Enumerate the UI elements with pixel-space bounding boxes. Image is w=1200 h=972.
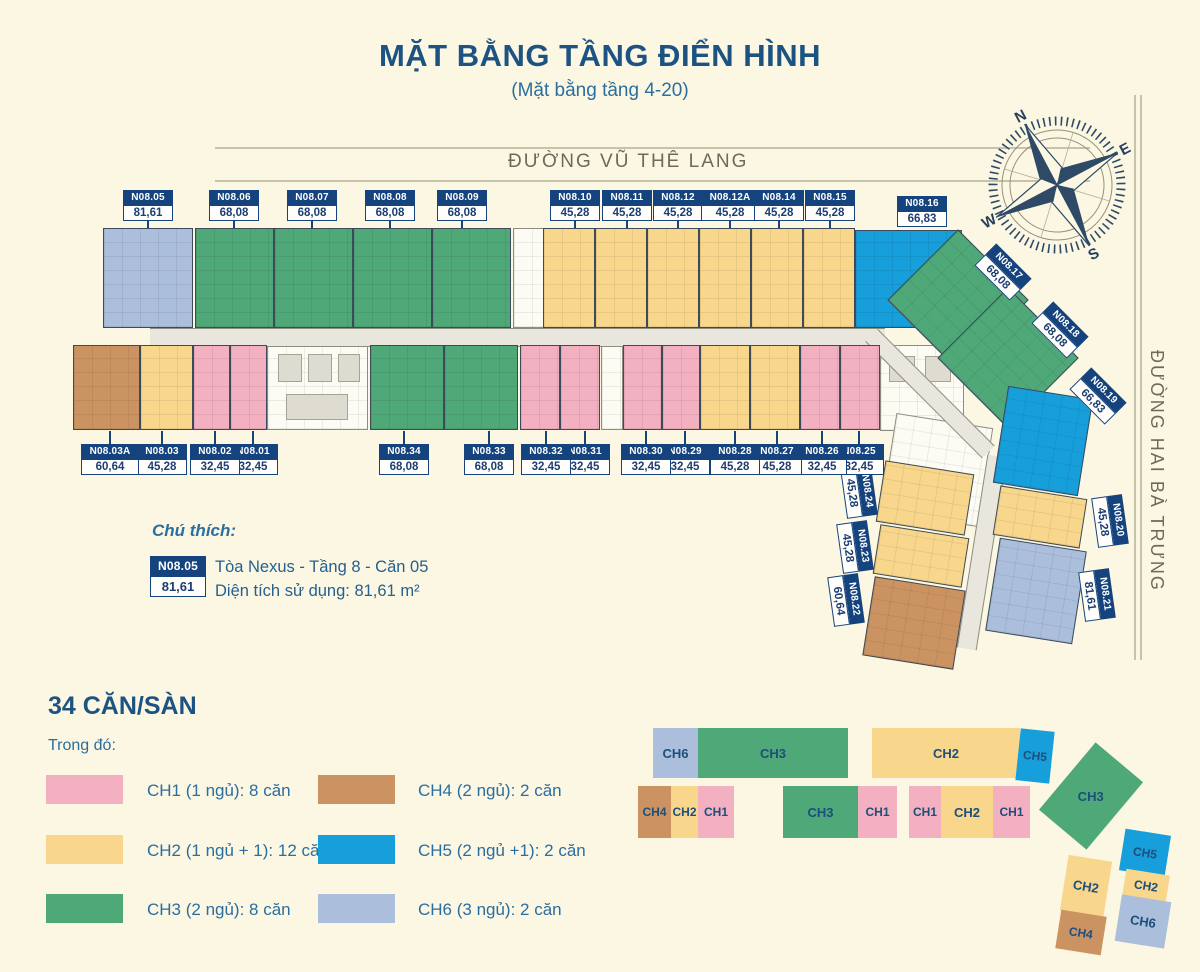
minimap-block-ch3: CH3 xyxy=(783,786,858,838)
unit-label-n08-26: N08.2632,45 xyxy=(797,444,847,475)
unit-block-ch2 xyxy=(140,345,193,430)
unit-block-ch1 xyxy=(840,345,880,430)
elevator-detail xyxy=(278,354,302,382)
legend-swatch-ch3 xyxy=(46,894,123,923)
minimap-block-ch2: CH2 xyxy=(872,728,1020,778)
unit-block-ch2 xyxy=(595,228,647,328)
unit-block-ch3 xyxy=(444,345,518,430)
unit-block-ch2 xyxy=(543,228,595,328)
street-name-top: ĐƯỜNG VŨ THÊ LANG xyxy=(500,151,736,173)
unit-label-n08-15: N08.1545,28 xyxy=(805,190,855,221)
unit-label-n08-06: N08.0668,08 xyxy=(209,190,259,221)
unit-block-ch3 xyxy=(274,228,353,328)
unit-block-ch2 xyxy=(751,228,803,328)
elevator-detail xyxy=(338,354,360,382)
core-lobby-block xyxy=(267,345,368,430)
minimap-block-ch6: CH6 xyxy=(1115,894,1172,948)
minimap-block-ch3: CH3 xyxy=(698,728,848,778)
unit-block-ch1 xyxy=(623,345,662,430)
unit-label-n08-10: N08.1045,28 xyxy=(550,190,600,221)
street-name-right: ĐƯỜNG HAI BÀ TRƯNG xyxy=(1146,350,1167,610)
unit-label-n08-11: N08.1145,28 xyxy=(602,190,652,221)
compass-south-label: S xyxy=(1085,244,1102,264)
unit-block-ch1 xyxy=(520,345,560,430)
unit-label-n08-22: N08.2260,64 xyxy=(827,573,865,627)
legend-label-ch2: CH2 (1 ngủ + 1): 12 căn xyxy=(147,841,329,861)
unit-label-n08-20: N08.2045,28 xyxy=(1091,494,1129,548)
summary-heading: 34 CĂN/SÀN xyxy=(48,692,197,721)
unit-label-n08-34: N08.3468,08 xyxy=(379,444,429,475)
minimap-block-ch6: CH6 xyxy=(653,728,698,778)
unit-label-n08-05: N08.0581,61 xyxy=(123,190,173,221)
minimap-block-ch4: CH4 xyxy=(638,786,671,838)
floorplan-page: MẶT BẰNG TẦNG ĐIỂN HÌNH (Mặt bằng tầng 4… xyxy=(0,0,1200,972)
unit-label-n08-14: N08.1445,28 xyxy=(754,190,804,221)
unit-block-ch1 xyxy=(560,345,600,430)
unit-block-ch2 xyxy=(876,460,975,535)
core-utility-block xyxy=(513,228,545,328)
minimap-block-ch2: CH2 xyxy=(941,786,993,838)
minimap-block-ch1: CH1 xyxy=(698,786,734,838)
unit-label-n08-28: N08.2845,28 xyxy=(710,444,760,475)
unit-block-ch1 xyxy=(662,345,700,430)
unit-block-ch4 xyxy=(862,576,965,669)
elevator-detail xyxy=(308,354,332,382)
unit-label-n08-21: N08.2181,61 xyxy=(1078,568,1116,622)
unit-block-ch3 xyxy=(432,228,511,328)
unit-label-n08-03: N08.0345,28 xyxy=(137,444,187,475)
unit-label-n08-03a: N08.03A60,64 xyxy=(81,444,139,475)
unit-label-n08-08: N08.0868,08 xyxy=(365,190,415,221)
page-title: MẶT BẰNG TẦNG ĐIỂN HÌNH xyxy=(0,38,1200,74)
note-line-2: Diện tích sử dụng: 81,61 m² xyxy=(215,582,420,601)
legend-label-ch5: CH5 (2 ngủ +1): 2 căn xyxy=(418,841,586,861)
unit-label-n08-12: N08.1245,28 xyxy=(653,190,703,221)
legend-swatch-ch2 xyxy=(46,835,123,864)
note-heading: Chú thích: xyxy=(152,521,236,541)
minimap-block-ch1: CH1 xyxy=(993,786,1030,838)
unit-block-ch2 xyxy=(803,228,855,328)
stair-detail xyxy=(286,394,348,420)
minimap-block-ch4: CH4 xyxy=(1055,910,1107,956)
unit-block-ch3 xyxy=(195,228,274,328)
unit-block-ch1 xyxy=(230,345,267,430)
unit-block-ch2 xyxy=(750,345,800,430)
unit-block-ch1 xyxy=(193,345,230,430)
unit-block-ch2 xyxy=(699,228,751,328)
unit-block-ch2 xyxy=(700,345,750,430)
unit-label-n08-16: N08.1666,83 xyxy=(897,196,947,227)
unit-block-ch2 xyxy=(647,228,699,328)
minimap-block-ch1: CH1 xyxy=(909,786,941,838)
legend-swatch-ch4 xyxy=(318,775,395,804)
unit-label-n08-02: N08.0232,45 xyxy=(190,444,240,475)
unit-label-n08-12a: N08.12A45,28 xyxy=(701,190,759,221)
minimap-block-ch5: CH5 xyxy=(1015,728,1054,783)
legend-label-ch1: CH1 (1 ngủ): 8 căn xyxy=(147,781,291,801)
unit-block-ch3 xyxy=(370,345,444,430)
legend-swatch-ch6 xyxy=(318,894,395,923)
core-stair-block xyxy=(601,345,623,430)
unit-label-n08-32: N08.3232,45 xyxy=(521,444,571,475)
note-sample-label: N08.05 81,61 xyxy=(150,556,206,597)
unit-label-n08-30: N08.3032,45 xyxy=(621,444,671,475)
unit-block-ch4 xyxy=(73,345,140,430)
summary-subheading: Trong đó: xyxy=(48,737,116,755)
minimap-block-ch2: CH2 xyxy=(1060,855,1112,917)
unit-label-n08-09: N08.0968,08 xyxy=(437,190,487,221)
unit-block-ch6 xyxy=(103,228,193,328)
legend-label-ch6: CH6 (3 ngủ): 2 căn xyxy=(418,900,562,920)
page-subtitle: (Mặt bằng tầng 4-20) xyxy=(0,80,1200,102)
unit-block-ch3 xyxy=(353,228,432,328)
minimap-block-ch2: CH2 xyxy=(671,786,698,838)
minimap-block-ch1: CH1 xyxy=(858,786,897,838)
legend-swatch-ch1 xyxy=(46,775,123,804)
legend-swatch-ch5 xyxy=(318,835,395,864)
unit-label-n08-07: N08.0768,08 xyxy=(287,190,337,221)
legend-label-ch3: CH3 (2 ngủ): 8 căn xyxy=(147,900,291,920)
unit-block-ch6 xyxy=(985,538,1087,645)
compass-east-label: E xyxy=(1117,139,1134,159)
unit-label-n08-33: N08.3368,08 xyxy=(464,444,514,475)
unit-block-ch1 xyxy=(800,345,840,430)
legend-label-ch4: CH4 (2 ngủ): 2 căn xyxy=(418,781,562,801)
unit-block-ch5 xyxy=(993,386,1093,496)
note-line-1: Tòa Nexus - Tầng 8 - Căn 05 xyxy=(215,558,428,577)
unit-label-n08-23: N08.2345,28 xyxy=(836,520,874,574)
